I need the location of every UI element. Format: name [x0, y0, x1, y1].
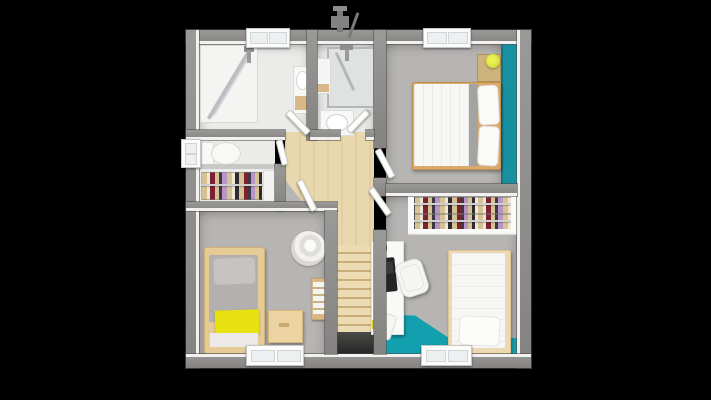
window-pane: [185, 143, 197, 154]
nightstand-handle: [279, 323, 289, 327]
window-wc: [181, 139, 201, 168]
window-bathroom-main: [246, 28, 290, 48]
toilet-bowl: [211, 142, 241, 165]
wall-cabinet-wood-base: [317, 84, 329, 92]
shower-column-bracket: [331, 16, 349, 28]
pillow: [213, 256, 257, 285]
shower-cabin-pipe: [345, 49, 349, 61]
wall-bedroom-master-south: [386, 184, 517, 196]
master-bed-duvet: [414, 84, 470, 166]
closet-side-panel: [408, 195, 414, 233]
pillow: [477, 125, 500, 166]
window-pane: [251, 350, 275, 362]
yellow-blanket: [215, 309, 260, 335]
window-pane: [427, 32, 447, 44]
clothes-rail-left: [201, 172, 265, 200]
vanity-wood-shelf: [295, 96, 307, 110]
shower-cabin: [327, 47, 375, 108]
window-pane: [250, 32, 268, 44]
exterior-wall-left: [186, 30, 199, 368]
wall-bathrooms-south-c: [366, 130, 374, 140]
teal-accent-wall: [501, 44, 517, 184]
round-rug: [291, 231, 326, 266]
wall-bathroom-split: [307, 30, 317, 140]
wall-stair-left: [325, 211, 337, 354]
stairwell-void: [337, 332, 374, 354]
staircase: [337, 245, 374, 332]
shower-pipe: [247, 50, 251, 63]
window-bedroom-left: [246, 345, 304, 366]
window-pane: [185, 154, 197, 165]
window-bedroom-right: [421, 345, 472, 366]
wall-bathrooms-south-b: [310, 130, 340, 140]
window-pane: [426, 350, 446, 362]
shower-column-cap: [333, 6, 347, 11]
closet-shelf-edge: [408, 229, 517, 233]
clothes-rail-bar: [201, 184, 263, 186]
pillow: [477, 84, 500, 125]
window-pane: [269, 32, 287, 44]
floor-plan-render: [0, 0, 711, 400]
window-bedroom-master: [423, 28, 471, 48]
exterior-wall-bottom: [186, 354, 531, 368]
wall-spine-lower: [374, 230, 386, 354]
exterior-wall-right: [517, 30, 531, 368]
window-pane: [448, 350, 468, 362]
clothes-rail-bar: [414, 220, 511, 222]
window-pane: [277, 350, 301, 362]
wall-spine-upper: [374, 30, 386, 148]
clothes-rail-bar: [414, 203, 511, 205]
lamp-icon: [486, 54, 500, 68]
clothes-rail-top: [414, 197, 513, 214]
window-pane: [448, 32, 468, 44]
wall-wc-dressing: [199, 164, 275, 169]
pillow: [458, 315, 500, 346]
exterior-wall-top: [186, 30, 531, 44]
